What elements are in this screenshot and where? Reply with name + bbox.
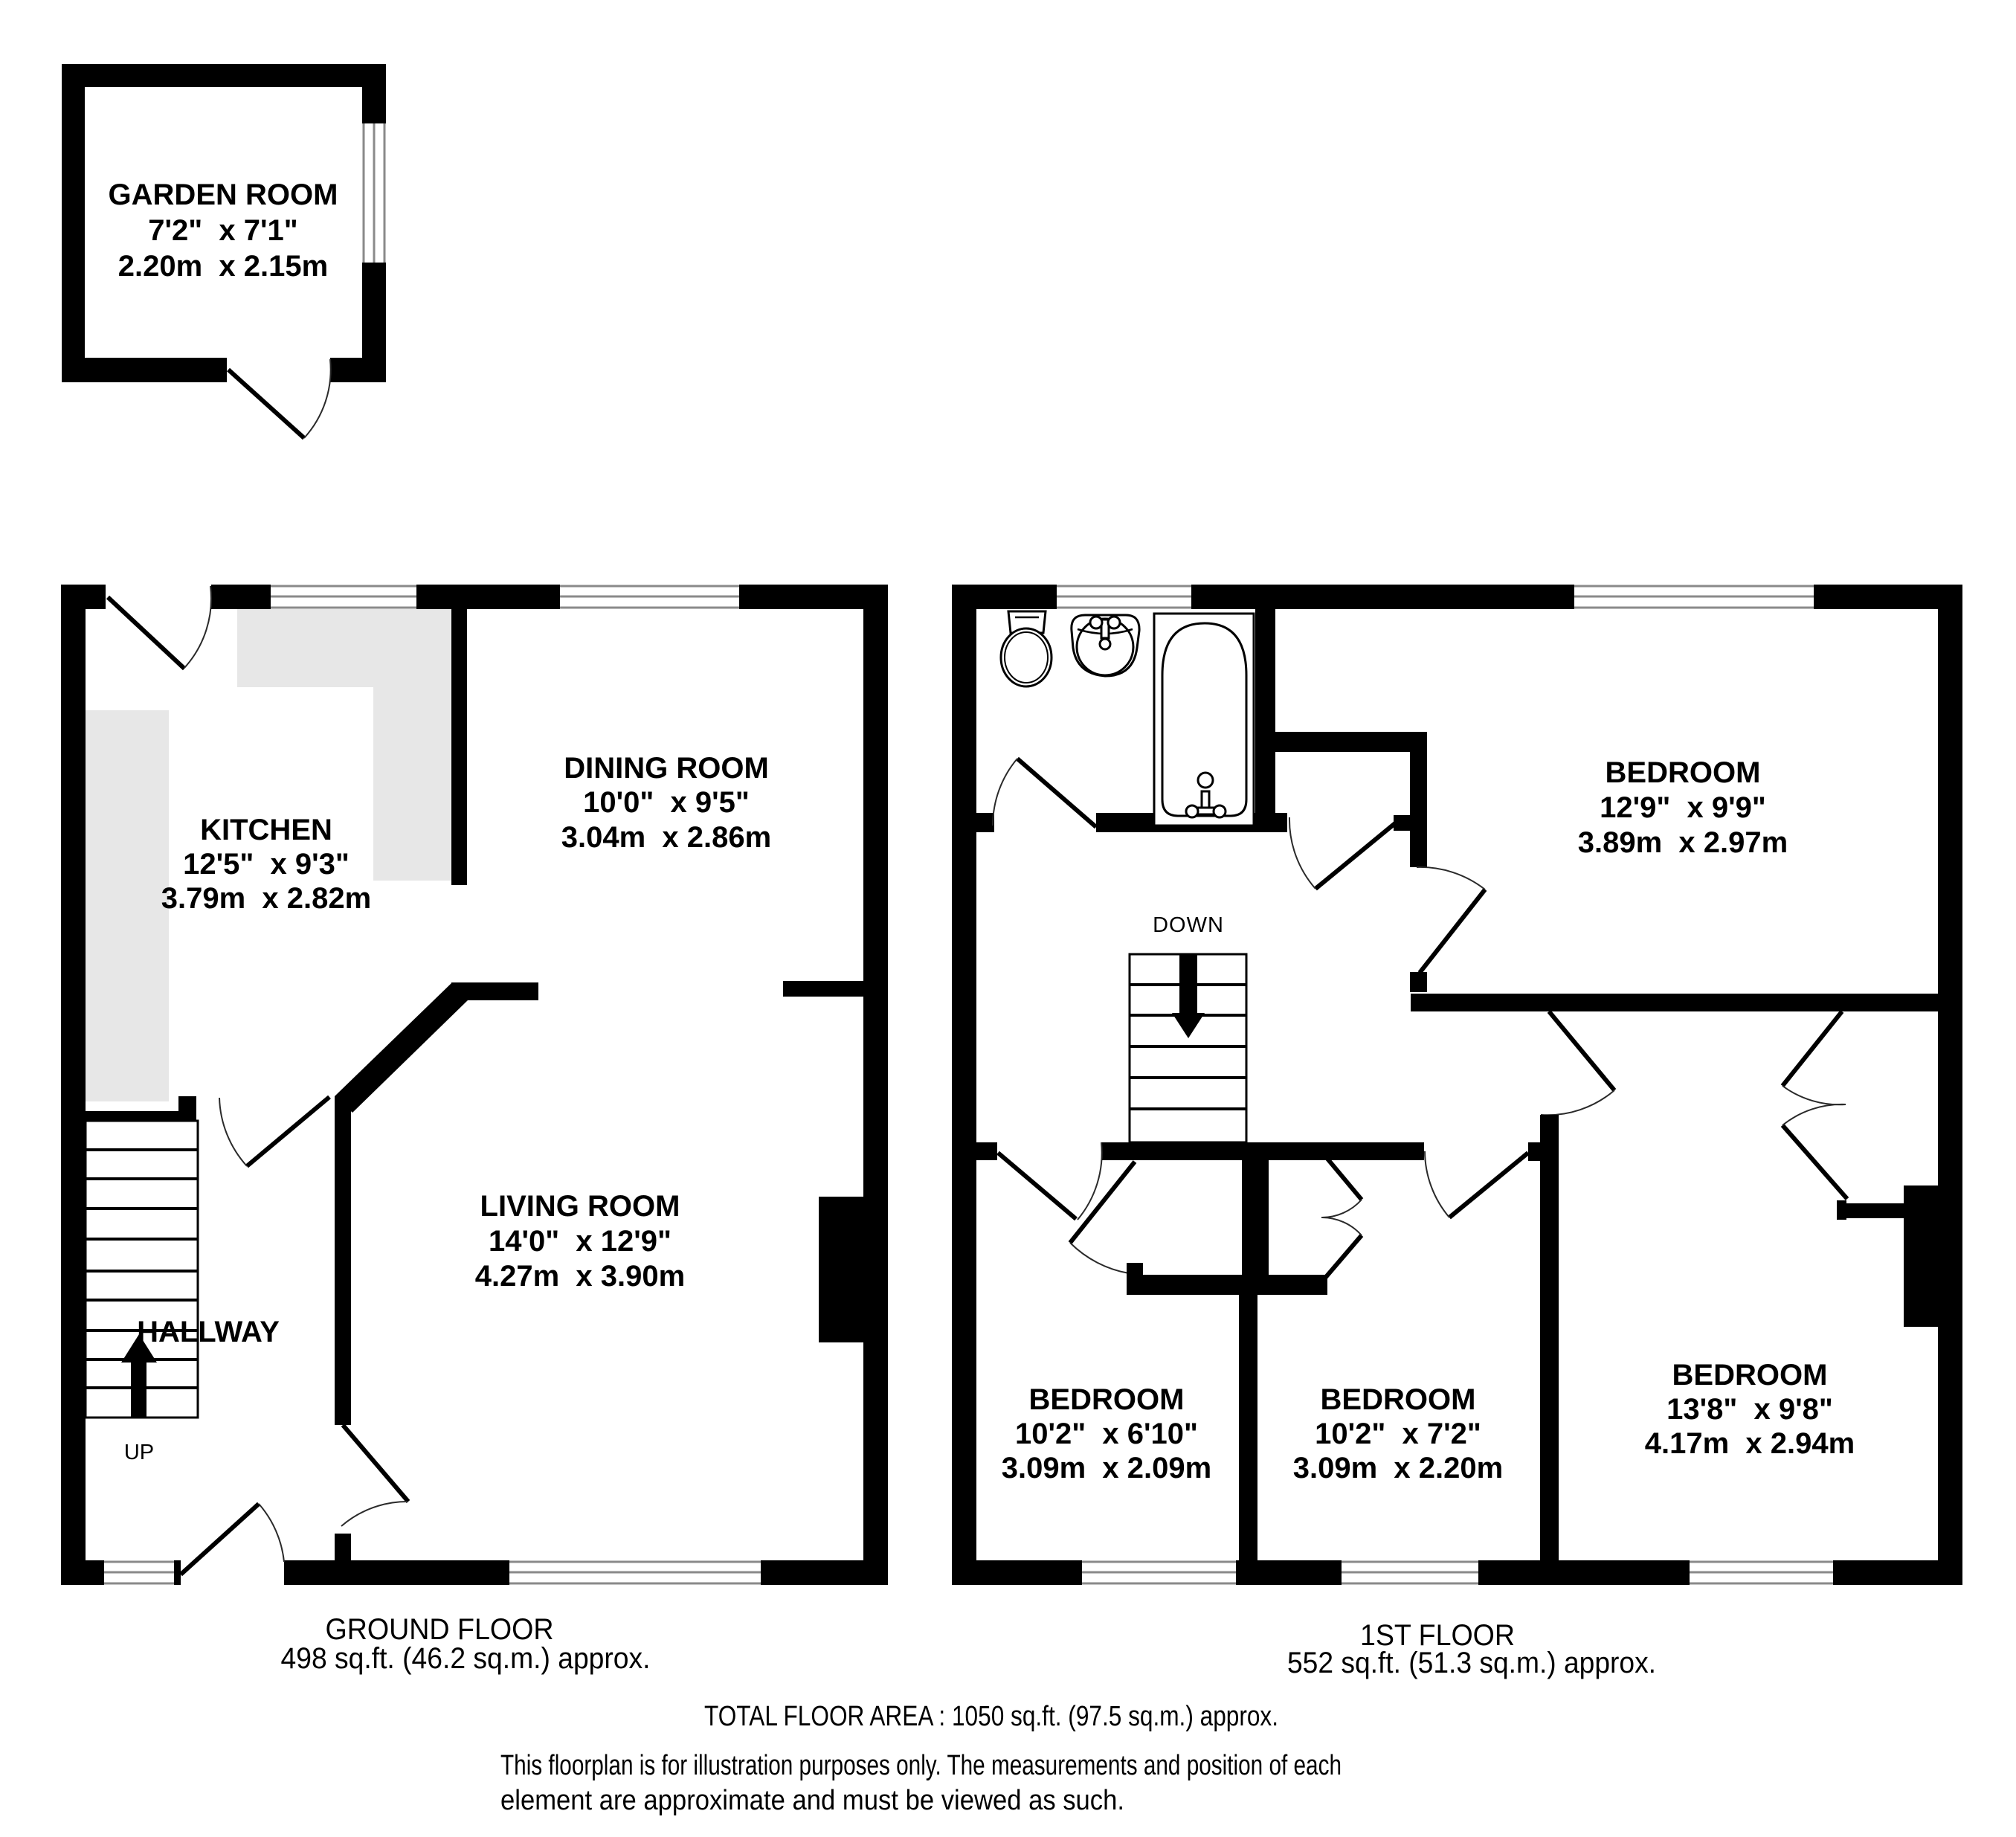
svg-text:10'2" x 6'10": 10'2" x 6'10": [1015, 1418, 1198, 1450]
svg-text:498 sq.ft. (46.2 sq.m.) approx: 498 sq.ft. (46.2 sq.m.) approx.: [281, 1642, 651, 1675]
svg-text:10'2" x 7'2": 10'2" x 7'2": [1315, 1418, 1481, 1450]
svg-text:LIVING ROOM: LIVING ROOM: [480, 1190, 680, 1223]
svg-text:4.27m x 3.90m: 4.27m x 3.90m: [475, 1260, 685, 1293]
svg-text:DOWN: DOWN: [1153, 913, 1224, 937]
svg-text:BEDROOM: BEDROOM: [1606, 756, 1761, 789]
svg-text:7'2" x 7'1": 7'2" x 7'1": [148, 214, 298, 247]
svg-text:HALLWAY: HALLWAY: [137, 1316, 280, 1348]
svg-text:BEDROOM: BEDROOM: [1029, 1383, 1185, 1416]
svg-text:3.09m x 2.20m: 3.09m x 2.20m: [1293, 1452, 1503, 1484]
svg-text:14'0" x 12'9": 14'0" x 12'9": [489, 1225, 672, 1258]
svg-text:4.17m x 2.94m: 4.17m x 2.94m: [1645, 1427, 1855, 1460]
svg-text:GARDEN ROOM: GARDEN ROOM: [109, 178, 338, 211]
svg-text:GROUND FLOOR: GROUND FLOOR: [326, 1613, 554, 1646]
svg-text:10'0" x 9'5": 10'0" x 9'5": [583, 786, 750, 819]
svg-text:12'5" x 9'3": 12'5" x 9'3": [183, 848, 350, 881]
svg-text:12'9" x 9'9": 12'9" x 9'9": [1600, 791, 1766, 824]
svg-text:13'8" x 9'8": 13'8" x 9'8": [1666, 1393, 1833, 1426]
svg-text:BEDROOM: BEDROOM: [1672, 1359, 1828, 1392]
svg-text:3.09m x 2.09m: 3.09m x 2.09m: [1002, 1452, 1211, 1484]
svg-text:This floorplan is for illustra: This floorplan is for illustration purpo…: [500, 1750, 1342, 1781]
svg-text:KITCHEN: KITCHEN: [200, 814, 332, 846]
svg-text:3.79m x 2.82m: 3.79m x 2.82m: [161, 882, 371, 915]
svg-text:2.20m x 2.15m: 2.20m x 2.15m: [118, 250, 328, 283]
svg-text:DINING ROOM: DINING ROOM: [564, 752, 769, 785]
svg-text:UP: UP: [124, 1441, 154, 1464]
svg-text:TOTAL FLOOR AREA : 1050 sq.ft.: TOTAL FLOOR AREA : 1050 sq.ft. (97.5 sq.…: [704, 1701, 1278, 1732]
svg-text:element are approximate and mu: element are approximate and must be view…: [500, 1785, 1124, 1816]
svg-text:3.04m x 2.86m: 3.04m x 2.86m: [561, 821, 771, 854]
svg-text:BEDROOM: BEDROOM: [1321, 1383, 1476, 1416]
svg-text:3.89m x 2.97m: 3.89m x 2.97m: [1578, 826, 1788, 859]
svg-text:552 sq.ft. (51.3 sq.m.) approx: 552 sq.ft. (51.3 sq.m.) approx.: [1287, 1647, 1656, 1679]
